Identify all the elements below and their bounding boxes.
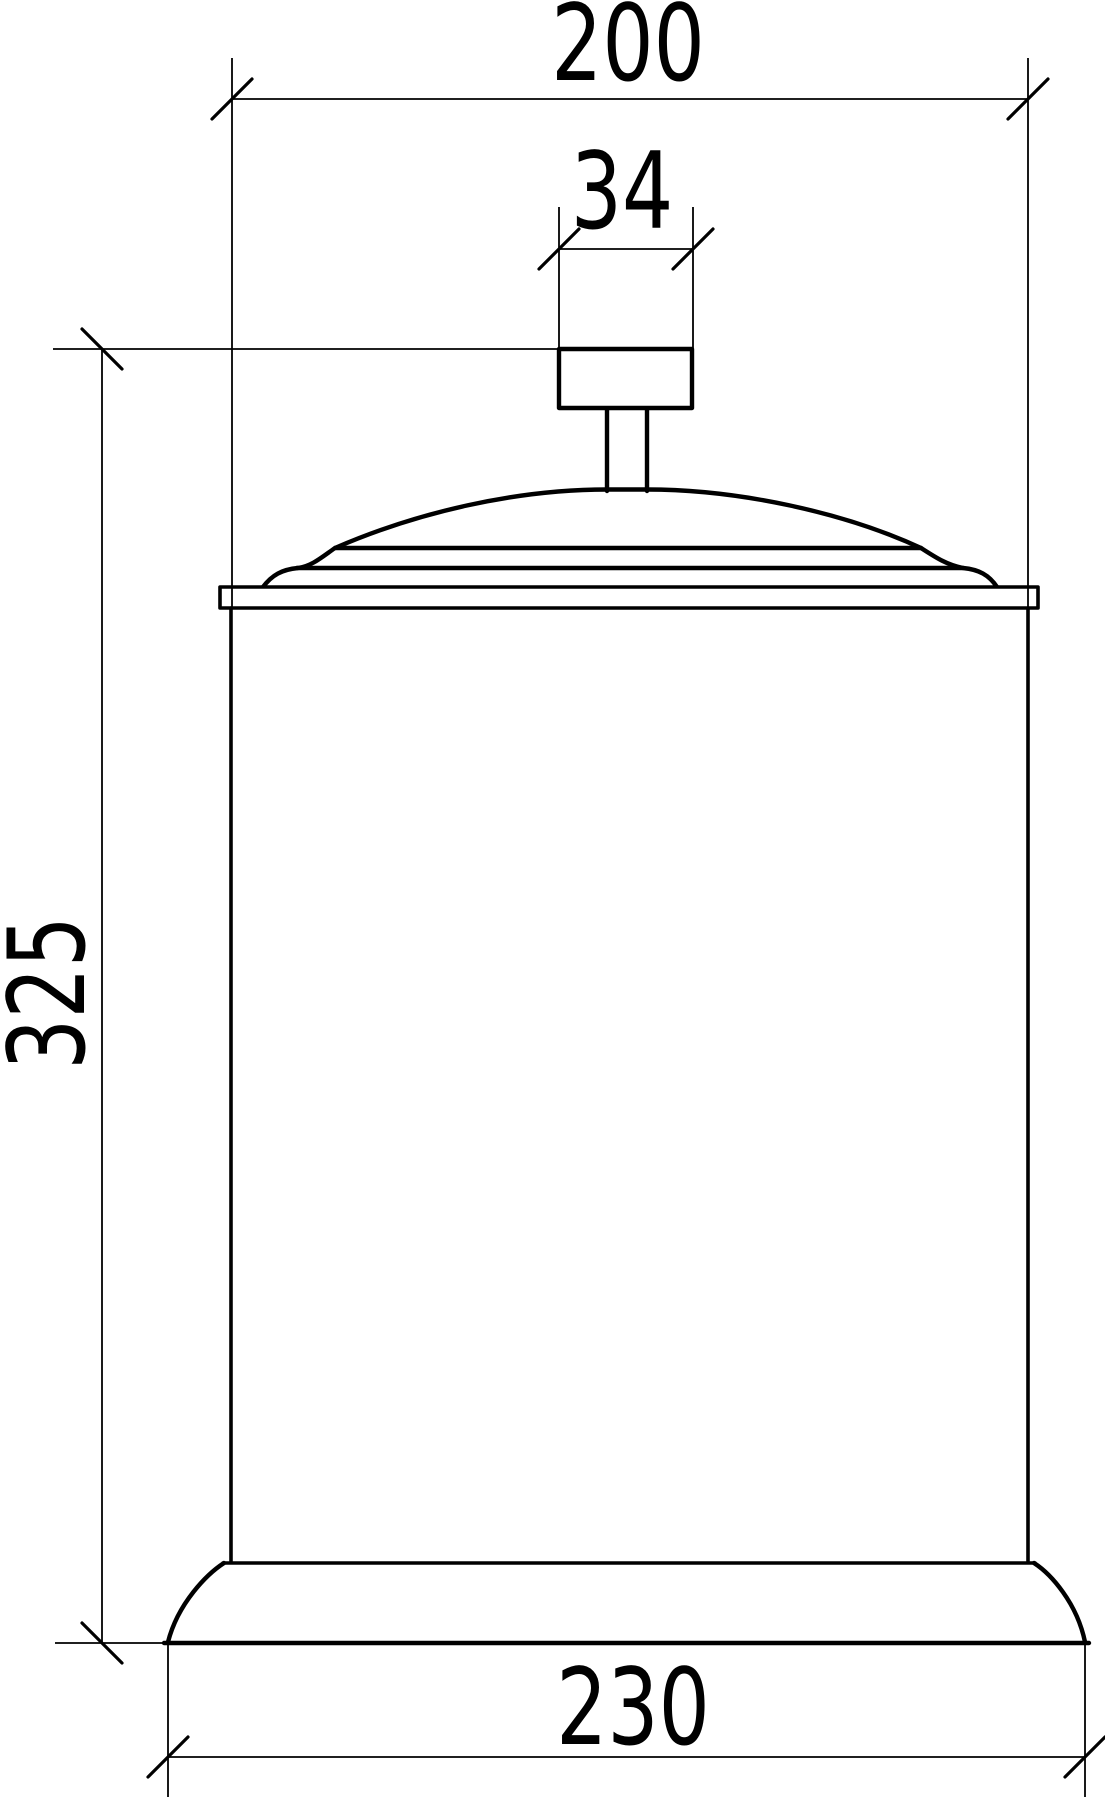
base-left-flare <box>168 1563 224 1642</box>
lid-dome-outline <box>263 490 997 588</box>
technical-drawing-sheet: 200 34 325 230 <box>0 0 1105 1800</box>
base-right-flare <box>1034 1563 1085 1642</box>
knob-cap <box>559 349 692 408</box>
bin-object <box>164 349 1089 1643</box>
dimension-label-base-width: 230 <box>556 1647 710 1770</box>
dimension-height: 325 <box>0 329 559 1663</box>
pedal-bin-technical-drawing: 200 34 325 230 <box>0 0 1105 1800</box>
dimension-label-height: 325 <box>0 916 110 1070</box>
dimension-label-top-width: 200 <box>551 0 705 106</box>
dimension-label-knob-width: 34 <box>571 131 673 254</box>
dimension-knob-width: 34 <box>539 131 713 349</box>
lid-rim-plate <box>220 587 1038 608</box>
dimension-top-width: 200 <box>212 0 1048 608</box>
dimension-base-width: 230 <box>148 1643 1105 1797</box>
